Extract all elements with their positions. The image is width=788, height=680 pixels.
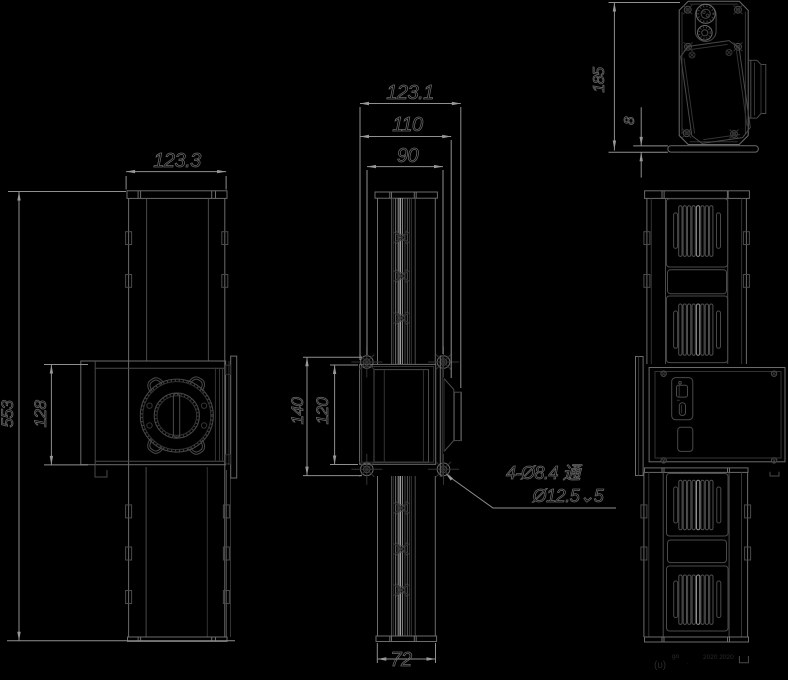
svg-text:120: 120 <box>313 397 332 425</box>
svg-text:123.3: 123.3 <box>153 150 201 172</box>
svg-text:553: 553 <box>0 400 17 428</box>
svg-text:2020 2020: 2020 2020 <box>703 654 734 661</box>
svg-text:Ø12.5⌄5: Ø12.5⌄5 <box>532 486 605 506</box>
svg-text:(υ): (υ) <box>654 660 666 671</box>
svg-text:128: 128 <box>31 400 50 428</box>
svg-text:72: 72 <box>390 649 412 671</box>
svg-text:140: 140 <box>288 397 307 425</box>
svg-text:110: 110 <box>392 114 423 136</box>
svg-text:185: 185 <box>591 67 608 93</box>
svg-text:go: go <box>672 653 680 660</box>
svg-text:90: 90 <box>397 145 419 167</box>
svg-text:4-Ø8.4 通: 4-Ø8.4 通 <box>506 463 583 483</box>
svg-text:123.1: 123.1 <box>386 82 434 104</box>
svg-text:8: 8 <box>621 116 638 125</box>
svg-text:.: . <box>687 660 689 666</box>
